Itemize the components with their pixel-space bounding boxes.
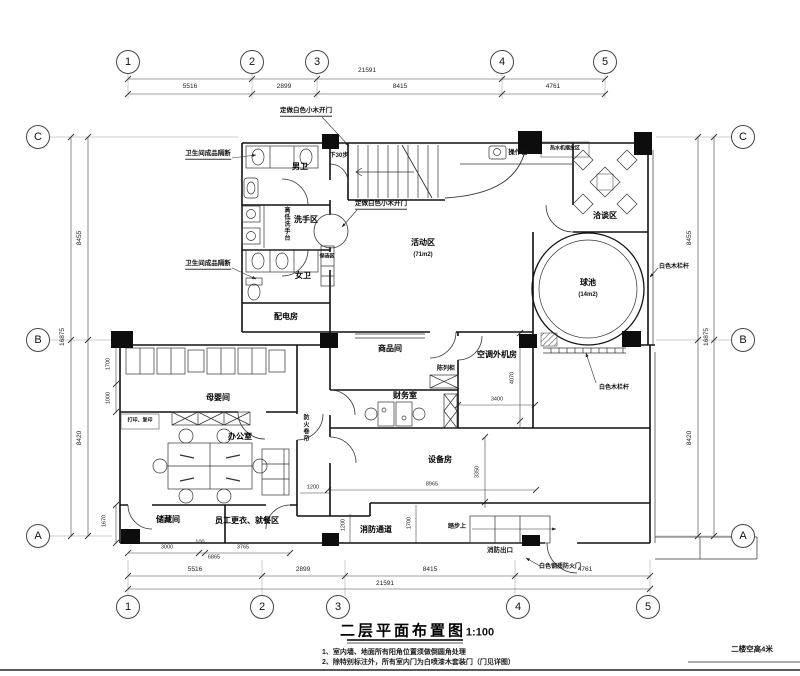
annotation-fire-exit: 消防出口: [487, 548, 513, 555]
room-label-wash-area: 洗手区: [294, 216, 318, 224]
dim-bottom-inner-3: 6865: [208, 555, 220, 561]
dim-top-bay-1: 5516: [183, 84, 197, 91]
grid-bubble-bottom-2: 2: [250, 595, 274, 619]
floor-height-note: 二楼空高4米: [731, 645, 773, 653]
drawing-note-2: 2、除特别标注外，所有室内门为白喷漆木套装门（门见详图）: [322, 657, 515, 667]
dim-left-inner-1000: 1000: [106, 392, 112, 404]
annotation-custom-door-1: 定做白色小木开门: [280, 108, 332, 117]
dim-top-bay-2: 2899: [277, 84, 291, 91]
dim-right-bay-2: 8420: [687, 431, 694, 445]
dim-top-bay-3: 8415: [393, 84, 407, 91]
dim-right-bay-1: 8455: [687, 231, 694, 245]
dim-interior-4070: 4070: [510, 372, 516, 384]
drawing-scale: 1:100: [466, 628, 494, 639]
hatch-corner: [541, 333, 557, 346]
dim-left-inner-1670: 1670: [102, 515, 108, 527]
dim-top-overall: 21591: [358, 68, 376, 75]
room-label-activity: 活动区: [411, 239, 435, 247]
dim-bottom-overall: 21591: [376, 581, 394, 588]
grid-bubble-right-a: A: [731, 524, 755, 548]
dim-interior-3350: 3350: [475, 466, 481, 478]
annotation-fire-door: 白色钢质防火门: [539, 564, 581, 570]
room-label-womens-wc: 女卫: [295, 272, 311, 280]
leader-lines: [232, 117, 658, 566]
grid-bubble-bottom-3: 3: [326, 595, 350, 619]
grid-bubble-bottom-1: 1: [116, 595, 140, 619]
columns: [111, 131, 652, 546]
room-label-equipment: 设备房: [428, 456, 452, 464]
room-label-goods: 商品间: [378, 345, 402, 353]
grid-bubble-left-b: B: [26, 328, 50, 352]
grid-bubble-left-c: C: [26, 125, 50, 149]
dim-bottom-bay-3: 8415: [423, 567, 437, 574]
room-label-office: 办公室: [228, 433, 252, 441]
annotation-print-copy: 打印、复印: [127, 419, 152, 424]
dim-interior-1200v: 1200: [341, 519, 347, 531]
dim-bottom-inner-4: 3765: [237, 545, 249, 551]
annotation-white-rail-2: 白色木栏杆: [599, 385, 629, 391]
dim-bottom-bay-2: 2899: [296, 567, 310, 574]
annotation-fire-shutter: 防火卷帘: [302, 414, 308, 442]
annotation-custom-door-2: 定做白色小木开门: [355, 201, 407, 210]
thin-lines: [355, 150, 757, 559]
room-label-nursing: 母婴间: [206, 394, 230, 402]
room-label-meeting: 洽谈区: [593, 212, 617, 220]
dim-left-bay-2: 8420: [77, 431, 84, 445]
grid-bubble-top-1: 1: [116, 50, 140, 74]
dim-left-inner-1700: 1700: [106, 358, 112, 370]
grid-bubble-top-3: 3: [305, 50, 329, 74]
dim-right-overall: 16875: [704, 328, 711, 346]
dim-bottom-bay-1: 5516: [188, 567, 202, 574]
dim-bottom-inner-1: 3000: [161, 545, 173, 551]
annotation-water-heater: 热水机摆放区: [550, 147, 580, 152]
room-label-fire-corridor: 消防通道: [360, 526, 392, 534]
dim-interior-1700v: 1700: [407, 517, 413, 529]
grid-bubble-top-5: 5: [593, 50, 617, 74]
dim-bottom-inner-2: 100: [195, 540, 204, 546]
grid-bubble-bottom-4: 4: [506, 595, 530, 619]
drawing-title: 二层平面布置图: [340, 624, 466, 639]
grid-bubble-bottom-5: 5: [636, 595, 660, 619]
grid-bubble-right-c: C: [731, 125, 755, 149]
grid-bubble-top-4: 4: [490, 50, 514, 74]
floor-plan-sheet: 1 2 3 4 5 1 2 3 4 5 C B A C B A 21591 55…: [0, 0, 800, 676]
room-label-mens-wc: 男卫: [292, 163, 308, 171]
annotation-toilet-partition-2: 卫生间成品隔断: [185, 261, 231, 270]
room-label-ac-room: 空调外机房: [477, 351, 517, 359]
dim-left-bay-1: 8455: [77, 231, 84, 245]
room-label-storage: 储藏间: [156, 516, 180, 524]
drawing-note-1: 1、室内墙、地面所有阳角位置须做倒圆角处理: [322, 647, 466, 657]
annotation-cleaning-area: 保洁区: [319, 255, 334, 260]
door-arcs: [128, 164, 577, 573]
room-label-power-room: 配电房: [274, 313, 298, 321]
dim-interior-1200h: 1200: [307, 485, 319, 491]
room-label-activity-size: (71m2): [413, 252, 432, 258]
room-label-finance: 财务室: [393, 392, 417, 400]
room-label-ball-pool: 球池: [580, 279, 596, 287]
dim-top-bay-4: 4761: [546, 84, 560, 91]
dim-interior-8965: 8965: [426, 482, 438, 488]
plan-linework: [0, 0, 800, 676]
room-label-display-cabinet: 陈列柜: [437, 366, 455, 372]
annotation-stairs-down: 下30步: [330, 153, 349, 159]
grid-bubble-left-a: A: [26, 524, 50, 548]
grid-bubble-right-b: B: [731, 328, 755, 352]
ball-pool-circle: [532, 233, 644, 345]
dim-interior-3400: 3400: [491, 397, 503, 403]
annotation-counter: 操作台: [508, 150, 528, 157]
annotation-white-rail-1: 白色木栏杆: [659, 264, 689, 270]
annotation-sink-counter: 高低洗手台: [283, 207, 289, 242]
room-label-staff: 员工更衣、就餐区: [215, 517, 279, 525]
room-label-ball-pool-size: (14m2): [578, 292, 597, 298]
annotation-toilet-partition-1: 卫生间成品隔断: [185, 151, 231, 160]
grid-bubble-top-2: 2: [240, 50, 264, 74]
annotation-step-up: 踏步上: [448, 524, 466, 530]
dim-left-overall: 16875: [60, 328, 67, 346]
